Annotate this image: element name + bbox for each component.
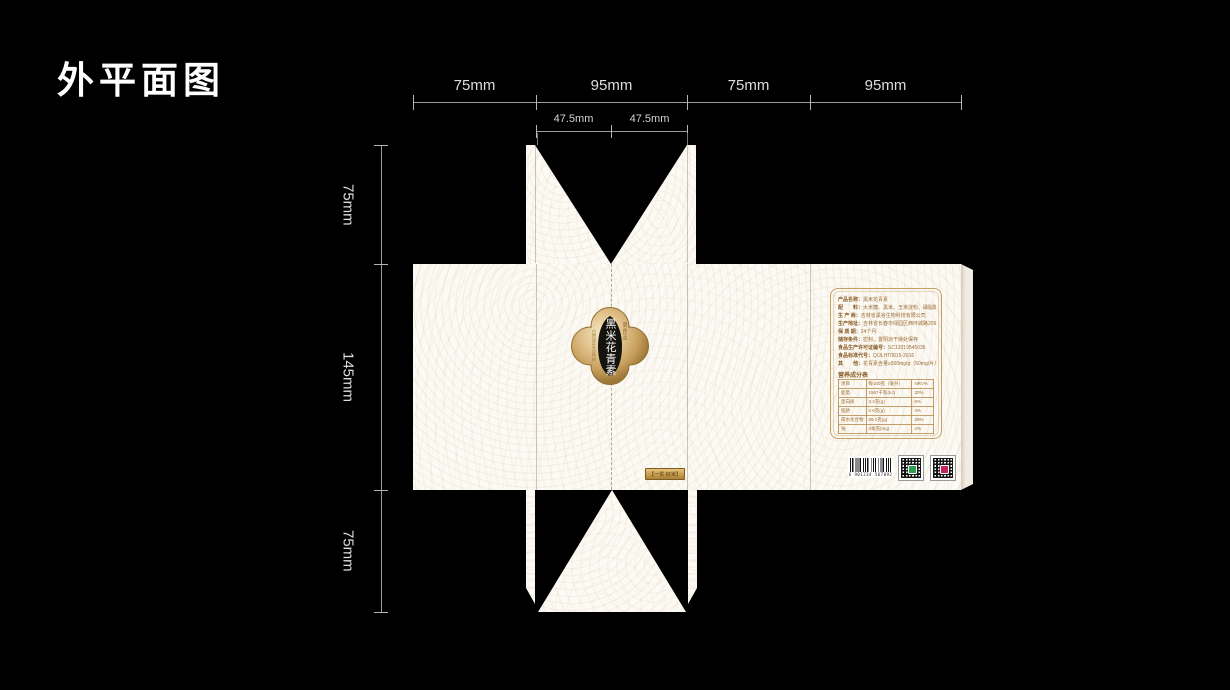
fold-line	[535, 146, 536, 263]
table-header-row: 项目 每100克（毫升） NRV%	[839, 380, 934, 389]
product-info-lines: 产品名称：黑米花青素 配 料：大米糖、黑米、玉米淀粉、磷脂酸酯 生 产 商：吉林…	[838, 296, 936, 368]
info-line: 保 质 期：24个月	[838, 328, 936, 336]
table-cell: 29%	[912, 416, 934, 425]
top-flap	[526, 145, 696, 264]
dim-tick	[961, 95, 962, 110]
nutrition-table: 项目 每100克（毫升） NRV% 能量 1567千焦(kJ) 20% 蛋白质 …	[838, 379, 934, 434]
info-line: 食品标准代号：Q/JLHT0015-2016	[838, 352, 936, 360]
table-cell: 2%	[912, 425, 934, 434]
emblem-side-text: 自然原生态种植	[591, 330, 598, 372]
table-cell: 89.2克(g)	[866, 416, 912, 425]
dim-label-top-2: 95mm	[536, 77, 687, 94]
table-cell: NRV%	[912, 380, 934, 389]
info-line: 食品生产许可证编号：SC12019545035	[838, 344, 936, 352]
dim-label-top-4: 95mm	[810, 77, 961, 94]
barcode-bars-icon	[850, 458, 891, 472]
table-row: 碳水化合物 89.2克(g) 29%	[839, 416, 934, 425]
fold-line	[536, 264, 537, 490]
table-cell: 碳水化合物	[839, 416, 867, 425]
emblem-brand-text: 黑米花青素	[602, 318, 618, 376]
gold-badge-text: 【一贯·好米】	[649, 471, 681, 478]
info-line: 配 料：大米糖、黑米、玉米淀粉、磷脂酸酯	[838, 304, 936, 312]
qr-center-logo-red	[940, 465, 949, 474]
barcode-digits: 6 901234 567892	[848, 472, 893, 477]
table-cell: 3.2克(g)	[866, 398, 912, 407]
fold-line	[687, 264, 688, 490]
dim-label-top-1: 75mm	[413, 77, 536, 94]
qr-center-logo-green	[908, 465, 917, 474]
table-cell: 蛋白质	[839, 398, 867, 407]
table-cell: 能量	[839, 389, 867, 398]
dim-left-line	[381, 145, 382, 612]
dim-label-sub-1: 47.5mm	[536, 113, 611, 125]
brand-emblem: 黑米花青素 御品珍选 自然原生态种植	[570, 307, 650, 385]
table-cell: 项目	[839, 380, 867, 389]
dim-tick	[413, 95, 414, 110]
bottom-flap-triangle	[538, 490, 686, 612]
page-title: 外平面图	[57, 50, 225, 104]
dim-extension-line	[537, 133, 538, 145]
table-cell: 钠	[839, 425, 867, 434]
table-cell: 4%	[912, 407, 934, 416]
dim-tick	[374, 612, 388, 613]
emblem-seal-text: 御品珍选	[622, 322, 629, 360]
dim-tick	[374, 490, 388, 491]
dim-label-left-1: 75mm	[338, 145, 358, 264]
dim-tick	[810, 95, 811, 110]
bottom-flap-strip-left	[526, 490, 535, 604]
dim-tick	[374, 145, 388, 146]
table-cell: 5%	[912, 398, 934, 407]
dim-tick	[611, 125, 612, 138]
fold-line	[810, 264, 811, 490]
table-cell: 2.6克(g)	[866, 407, 912, 416]
table-cell: 每100克（毫升）	[866, 380, 912, 389]
qr-code-icon	[930, 455, 956, 481]
nutrition-table-title: 营养成分表	[838, 370, 868, 379]
dieline-canvas: 外平面图 75mm 95mm 75mm 95mm 47.5mm 47.5mm 7…	[0, 0, 1230, 690]
bottom-flap-strip-right	[688, 490, 697, 604]
dim-label-sub-2: 47.5mm	[612, 113, 687, 125]
dim-tick	[536, 95, 537, 110]
dim-tick	[374, 264, 388, 265]
info-line: 生 产 商：吉林省黑谷生物科技有限公司	[838, 312, 936, 320]
table-cell: 脂肪	[839, 407, 867, 416]
product-info-box: 产品名称：黑米花青素 配 料：大米糖、黑米、玉米淀粉、磷脂酸酯 生 产 商：吉林…	[830, 288, 942, 439]
table-cell: 4毫克(mg)	[866, 425, 912, 434]
info-line: 储存条件：密封、置阴凉干燥处保存	[838, 336, 936, 344]
table-row: 能量 1567千焦(kJ) 20%	[839, 389, 934, 398]
table-cell: 20%	[912, 389, 934, 398]
dim-label-left-2: 145mm	[338, 264, 358, 490]
table-row: 蛋白质 3.2克(g) 5%	[839, 398, 934, 407]
barcode: 6 901234 567892	[848, 456, 893, 478]
gold-badge: 【一贯·好米】	[645, 468, 685, 480]
qr-code-icon	[898, 455, 924, 481]
glue-flap	[961, 264, 973, 490]
info-line: 其 他：花青素含量≥500mg/g（50mg/片）	[838, 360, 936, 368]
table-row: 脂肪 2.6克(g) 4%	[839, 407, 934, 416]
dim-tick	[687, 95, 688, 110]
table-cell: 1567千焦(kJ)	[866, 389, 912, 398]
dim-label-top-3: 75mm	[687, 77, 810, 94]
dim-label-left-3: 75mm	[338, 490, 358, 612]
info-line: 产品名称：黑米花青素	[838, 296, 936, 304]
table-row: 钠 4毫克(mg) 2%	[839, 425, 934, 434]
info-line: 生产地址：吉林省长春市绿园区西环城路209号	[838, 320, 936, 328]
fold-line	[687, 146, 688, 263]
dim-extension-line	[687, 133, 688, 145]
